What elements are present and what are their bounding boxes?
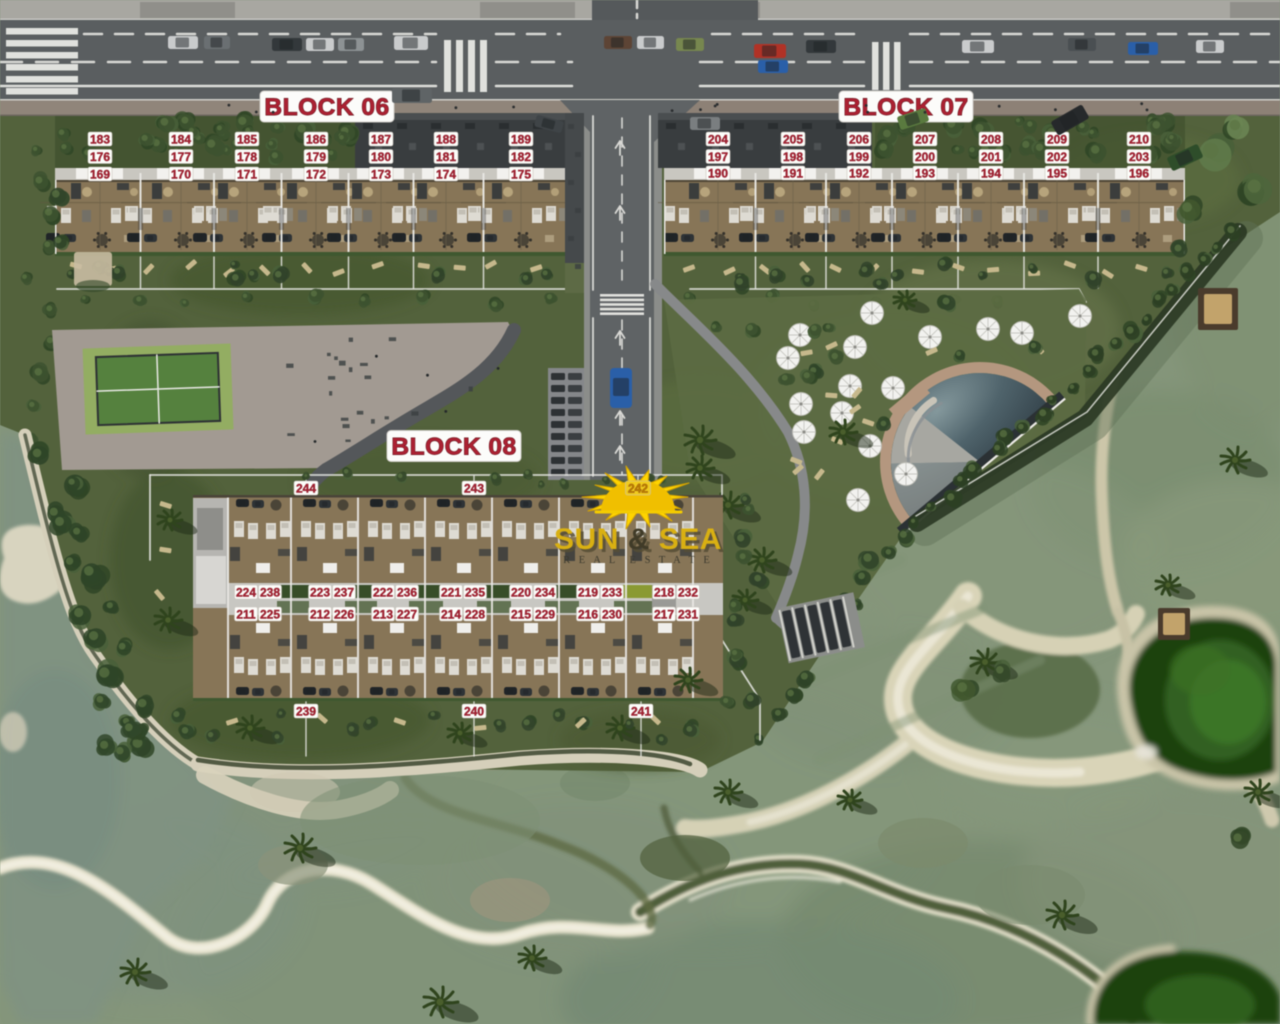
svg-text:BLOCK 08: BLOCK 08 (391, 434, 516, 461)
svg-text:235: 235 (465, 585, 485, 599)
svg-text:224: 224 (236, 585, 256, 599)
svg-text:173: 173 (371, 167, 391, 181)
svg-text:230: 230 (602, 607, 622, 621)
svg-text:201: 201 (981, 150, 1001, 164)
svg-text:215: 215 (511, 607, 531, 621)
svg-text:181: 181 (436, 150, 456, 164)
svg-text:171: 171 (237, 167, 257, 181)
svg-text:184: 184 (171, 132, 191, 146)
svg-text:229: 229 (535, 607, 555, 621)
svg-text:205: 205 (783, 132, 803, 146)
svg-text:192: 192 (849, 166, 869, 180)
svg-text:232: 232 (678, 585, 698, 599)
svg-text:179: 179 (306, 150, 326, 164)
svg-text:207: 207 (915, 132, 935, 146)
svg-text:208: 208 (981, 132, 1001, 146)
svg-text:170: 170 (171, 167, 191, 181)
svg-text:219: 219 (578, 585, 598, 599)
svg-text:225: 225 (260, 607, 280, 621)
svg-text:199: 199 (849, 150, 869, 164)
svg-text:211: 211 (236, 607, 256, 621)
svg-text:242: 242 (628, 481, 648, 495)
svg-text:221: 221 (441, 585, 461, 599)
svg-text:226: 226 (334, 607, 354, 621)
svg-text:174: 174 (436, 167, 456, 181)
svg-text:233: 233 (602, 585, 622, 599)
svg-text:SUN & SEA: SUN & SEA (554, 523, 722, 556)
svg-text:182: 182 (511, 150, 531, 164)
svg-text:204: 204 (708, 132, 728, 146)
svg-text:BLOCK 06: BLOCK 06 (264, 94, 389, 121)
svg-text:172: 172 (306, 167, 326, 181)
svg-text:193: 193 (915, 166, 935, 180)
svg-text:239: 239 (296, 704, 316, 718)
svg-text:223: 223 (310, 585, 330, 599)
svg-text:187: 187 (371, 132, 391, 146)
svg-text:177: 177 (171, 150, 191, 164)
svg-text:R E A L E S T A T E: R E A L E S T A T E (563, 555, 713, 566)
svg-text:189: 189 (511, 132, 531, 146)
svg-text:243: 243 (464, 481, 484, 495)
svg-text:216: 216 (578, 607, 598, 621)
svg-text:176: 176 (90, 150, 110, 164)
svg-text:231: 231 (678, 607, 698, 621)
svg-text:210: 210 (1129, 132, 1149, 146)
svg-text:183: 183 (90, 132, 110, 146)
svg-text:218: 218 (654, 585, 674, 599)
svg-text:178: 178 (237, 150, 257, 164)
svg-text:237: 237 (334, 585, 354, 599)
svg-text:240: 240 (464, 704, 484, 718)
svg-text:188: 188 (436, 132, 456, 146)
svg-text:200: 200 (915, 150, 935, 164)
svg-text:190: 190 (708, 166, 728, 180)
svg-text:180: 180 (371, 150, 391, 164)
svg-text:196: 196 (1129, 166, 1149, 180)
svg-text:202: 202 (1047, 150, 1067, 164)
svg-text:175: 175 (511, 167, 531, 181)
svg-text:244: 244 (296, 481, 316, 495)
svg-text:169: 169 (90, 167, 110, 181)
svg-text:197: 197 (708, 150, 728, 164)
svg-text:212: 212 (310, 607, 330, 621)
svg-text:228: 228 (465, 607, 485, 621)
svg-text:186: 186 (306, 132, 326, 146)
svg-text:194: 194 (981, 166, 1001, 180)
svg-text:203: 203 (1129, 150, 1149, 164)
svg-text:209: 209 (1047, 132, 1067, 146)
svg-text:241: 241 (631, 704, 651, 718)
svg-text:198: 198 (783, 150, 803, 164)
svg-text:191: 191 (783, 166, 803, 180)
svg-text:195: 195 (1047, 166, 1067, 180)
svg-text:222: 222 (373, 585, 393, 599)
svg-text:185: 185 (237, 132, 257, 146)
svg-text:236: 236 (397, 585, 417, 599)
svg-text:217: 217 (654, 607, 674, 621)
svg-text:238: 238 (260, 585, 280, 599)
svg-text:220: 220 (511, 585, 531, 599)
svg-text:214: 214 (441, 607, 461, 621)
svg-text:206: 206 (849, 132, 869, 146)
svg-text:234: 234 (535, 585, 555, 599)
svg-text:227: 227 (397, 607, 417, 621)
svg-text:213: 213 (373, 607, 393, 621)
